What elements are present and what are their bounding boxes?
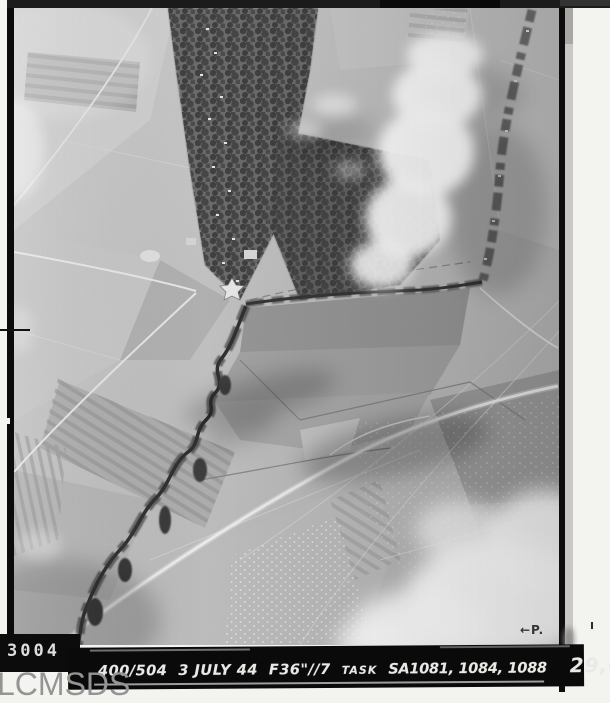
caption-band: 400/504 3 JULY 44 F36"//7 TASK SA1081, 1… [68, 644, 584, 690]
photo-content [0, 0, 605, 680]
scanned-aerial-photo-page: 3004 400/504 3 JULY 44 F36"//7 TASK SA10… [0, 0, 610, 700]
archive-watermark: LCMSDS [0, 666, 130, 703]
caption-underline [94, 680, 544, 685]
aerial-photograph [0, 0, 610, 700]
print-mark: ←P. [520, 623, 544, 637]
caption-frame-line [90, 649, 250, 652]
caption-text: 400/504 3 JULY 44 F36"//7 TASK SA1081, 1… [98, 653, 610, 681]
film-border-top [7, 0, 610, 8]
film-grain [14, 8, 559, 645]
camera-focal-length: F36"//7 [269, 662, 331, 678]
task-numbers: SA1081, 1084, 1088 [388, 660, 547, 677]
film-edge-strip [565, 8, 573, 645]
task-label: TASK [342, 664, 378, 677]
film-border-right [559, 8, 565, 692]
film-border-left [7, 0, 14, 648]
caption-frame-line-right [440, 645, 570, 648]
photo-date: 3 JULY 44 [178, 662, 258, 679]
altitude: 29,000' [570, 653, 610, 678]
fiducial-mark [0, 329, 30, 331]
frame-number: 3004 [7, 641, 60, 661]
